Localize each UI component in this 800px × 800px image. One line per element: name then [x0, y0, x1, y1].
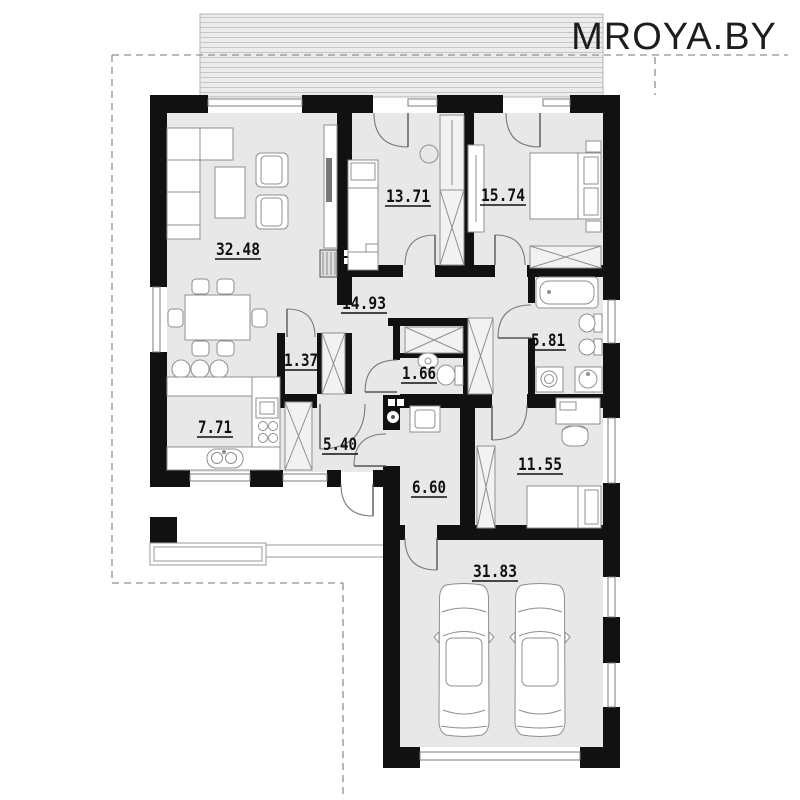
boiler-icon	[410, 406, 440, 432]
window-bedroom1	[408, 99, 437, 106]
bed-double-icon	[530, 141, 601, 232]
watermark-logo: MROYA.BY	[571, 16, 777, 58]
room-label-kitchen: 7.71	[198, 418, 232, 438]
wardrobe-icon	[530, 246, 601, 268]
storage-icon	[322, 333, 345, 394]
tv-icon	[326, 158, 332, 202]
window-garage-1	[608, 577, 615, 617]
window-garage-2	[608, 663, 615, 707]
washbasin-icon	[575, 367, 602, 392]
room-label-bedroom-2: 15.74	[481, 186, 525, 206]
flue-icon	[388, 399, 395, 406]
window-bedroom3	[608, 418, 615, 483]
floor-plan: 32.48 13.71 15.74 14.93 1.37 1.66 5.81 7…	[0, 0, 800, 800]
car-icon	[510, 584, 570, 737]
bidet-icon	[579, 339, 602, 355]
room-label-living-room: 32.48	[216, 240, 260, 260]
radiator-icon	[320, 250, 337, 277]
room-label-pantry: 1.37	[284, 351, 318, 371]
window-kitchen	[190, 474, 250, 481]
toilet-icon	[437, 365, 463, 385]
window-mudroom	[283, 474, 327, 481]
garage-gate	[420, 752, 580, 760]
room-label-bathroom: 5.81	[531, 331, 565, 351]
wardrobe-icon	[440, 115, 464, 265]
terrace-column	[150, 517, 177, 544]
room-label-garage: 31.83	[473, 562, 517, 582]
wardrobe-icon	[477, 446, 495, 528]
desk-icon	[556, 398, 600, 424]
bed-single-icon	[527, 486, 601, 528]
car-icon	[434, 584, 494, 737]
window-dining	[153, 287, 160, 352]
window-living	[208, 99, 302, 106]
kitchen-sink-icon	[207, 449, 243, 468]
window-bedroom2	[543, 99, 570, 106]
wardrobe-icon	[468, 318, 493, 394]
room-label-hall: 14.93	[342, 294, 386, 314]
room-label-boiler-room: 6.60	[412, 478, 446, 498]
storage-icon	[405, 327, 463, 353]
chair-icon	[562, 426, 588, 446]
room-label-mudroom: 5.40	[323, 435, 357, 455]
bathtub-icon	[536, 277, 598, 308]
window-bathroom	[608, 300, 615, 343]
wardrobe-icon	[285, 402, 312, 470]
room-label-bedroom-1: 13.71	[386, 187, 430, 207]
toilet-icon	[579, 314, 602, 332]
room-label-wc: 1.66	[402, 364, 436, 384]
bar-stool-icon	[172, 360, 190, 378]
room-label-bedroom-3: 11.55	[518, 455, 562, 475]
bed-single-icon	[348, 160, 378, 270]
coffee-table-icon	[215, 167, 245, 218]
washing-machine-icon	[536, 367, 563, 392]
